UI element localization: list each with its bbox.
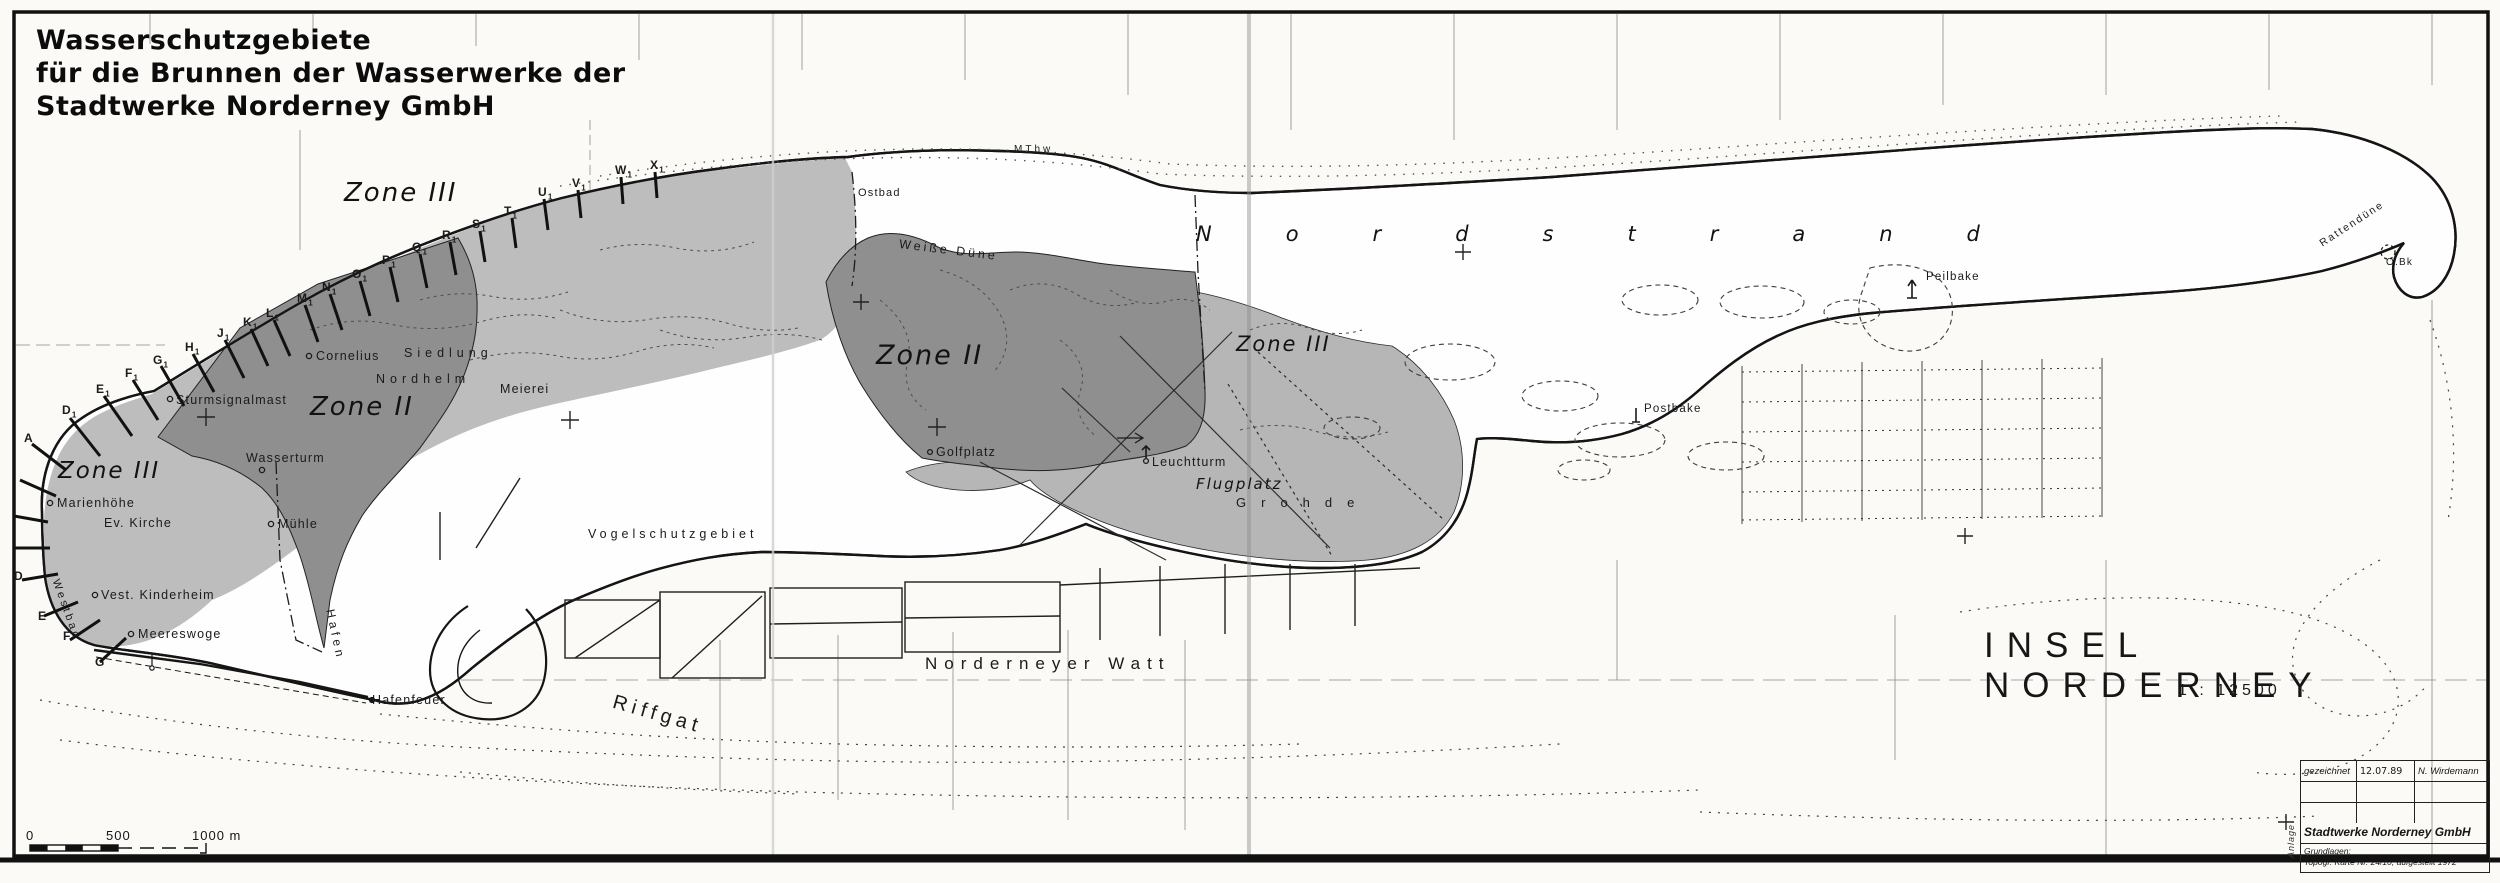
groyne-label-k1: K1 [243, 316, 259, 331]
map-legend-title: Wasserschutzgebiete für die Brunnen der … [36, 24, 626, 123]
norderneyer-watt-label: Norderneyer Watt [925, 655, 1171, 672]
nordhelm-label: Nordhelm [376, 373, 470, 386]
marienhoehe-label: Marienhöhe [57, 497, 135, 510]
company-name: Stadtwerke Norderney GmbH [2300, 823, 2490, 844]
scale-tick-0: 0 [26, 828, 34, 843]
groyne-label-n1: N1 [322, 281, 338, 296]
scale-tick-1000: 1000 m [192, 828, 241, 843]
norderney-map-canvas [0, 0, 2500, 883]
anlage-label: Anlage [2286, 824, 2296, 858]
sturmsignalmast-label: Sturmsignalmast [176, 394, 287, 407]
groyne-label-r1: R1 [442, 229, 458, 244]
title-line-1: Wasserschutzgebiete [36, 24, 626, 57]
title-line-2: für die Brunnen der Wasserwerke der [36, 57, 626, 90]
groyne-label-x1: X1 [650, 159, 665, 174]
zone-ii-central-label: Zone II [876, 342, 983, 369]
map-sources: Grundlagen: Topogr. Karte Nr. 24/10, auf… [2300, 844, 2490, 873]
groyne-label-f1: F1 [125, 367, 139, 382]
siedlung-label: Siedlung [404, 347, 493, 360]
table-row [2300, 781, 2490, 802]
peilbake-label: Peilbake [1926, 272, 1980, 284]
groyne-label-o1: O1 [352, 268, 368, 283]
groyne-label-m1: M1 [297, 292, 314, 307]
obk-label: O.Bk [2386, 258, 2413, 268]
zone-iii-central-label: Zone III [344, 180, 457, 206]
vogelschutzgebiet-label: Vogelschutzgebiet [588, 528, 757, 541]
groyne-label-f: F [63, 630, 72, 642]
golfplatz-label: Golfplatz [936, 446, 996, 459]
groyne-label-e1: E1 [96, 383, 111, 398]
groyne-label-v1: V1 [572, 177, 587, 192]
groyne-label-d: D [14, 570, 24, 582]
muehle-label: Mühle [278, 518, 318, 531]
groyne-label-g: G [95, 656, 106, 668]
ev-kirche-label: Ev. Kirche [104, 517, 172, 530]
zone-iii-west-label: Zone III [58, 460, 160, 483]
groyne-label-q1: Q1 [412, 241, 428, 256]
wasserturm-label: Wasserturm [246, 452, 325, 465]
drawing-date: 12.07.89 [2357, 761, 2415, 781]
zone-iii-east-label: Zone III [1236, 334, 1331, 355]
groyne-label-u1: U1 [538, 186, 554, 201]
kinderheim-label: Vest. Kinderheim [101, 589, 215, 602]
drawing-info-table: gezeichnet 12.07.89 N. Wirdemann Stadtwe… [2300, 760, 2490, 873]
map-sheet: Wasserschutzgebiete für die Brunnen der … [0, 0, 2500, 883]
leuchtturm-label: Leuchtturm [1152, 456, 1227, 469]
mthw-label: MThw [1014, 145, 1053, 155]
groyne-label-t1: T1 [504, 205, 518, 220]
zone-ii-west-label: Zone II [310, 394, 414, 420]
groyne-label-h1: H1 [185, 341, 201, 356]
groyne-label-s1: S1 [472, 218, 487, 233]
cornelius-label: Cornelius [316, 350, 380, 363]
title-line-3: Stadtwerke Norderney GmbH [36, 90, 626, 123]
hafenfeuer-label: Hafenfeuer [372, 694, 446, 707]
gezeichnet-label: gezeichnet [2301, 761, 2357, 781]
map-scale: 1 : 12500 [2178, 682, 2281, 700]
grundlagen-label: Grundlagen: [2304, 846, 2351, 856]
groyne-label-w1: W1 [615, 164, 633, 179]
source-note: Topogr. Karte Nr. 24/10, aufgestellt 197… [2304, 857, 2457, 867]
table-row: gezeichnet 12.07.89 N. Wirdemann [2300, 760, 2490, 781]
grohde-label: Grohde [1236, 496, 1369, 509]
groyne-label-e: E [38, 610, 47, 622]
meierei-label: Meierei [500, 383, 549, 396]
groyne-label-j1: J1 [217, 327, 231, 342]
groyne-label-p1: P1 [382, 254, 397, 269]
groyne-label-a: A [24, 432, 34, 444]
groyne-label-g1: G1 [153, 354, 169, 369]
table-row [2300, 802, 2490, 823]
meereswoge-label: Meereswoge [138, 628, 222, 641]
flugplatz-label: Flugplatz [1196, 477, 1282, 492]
ostbad-label: Ostbad [858, 188, 901, 199]
nordstrand-label: Nordstrand [1196, 224, 2054, 245]
draftsman-name: N. Wirdemann [2415, 761, 2489, 781]
groyne-label-d1: D1 [62, 404, 78, 419]
groyne-label-l1: L1 [266, 307, 280, 322]
scale-tick-500: 500 [106, 828, 131, 843]
postbake-label: Postbake [1644, 404, 1702, 416]
